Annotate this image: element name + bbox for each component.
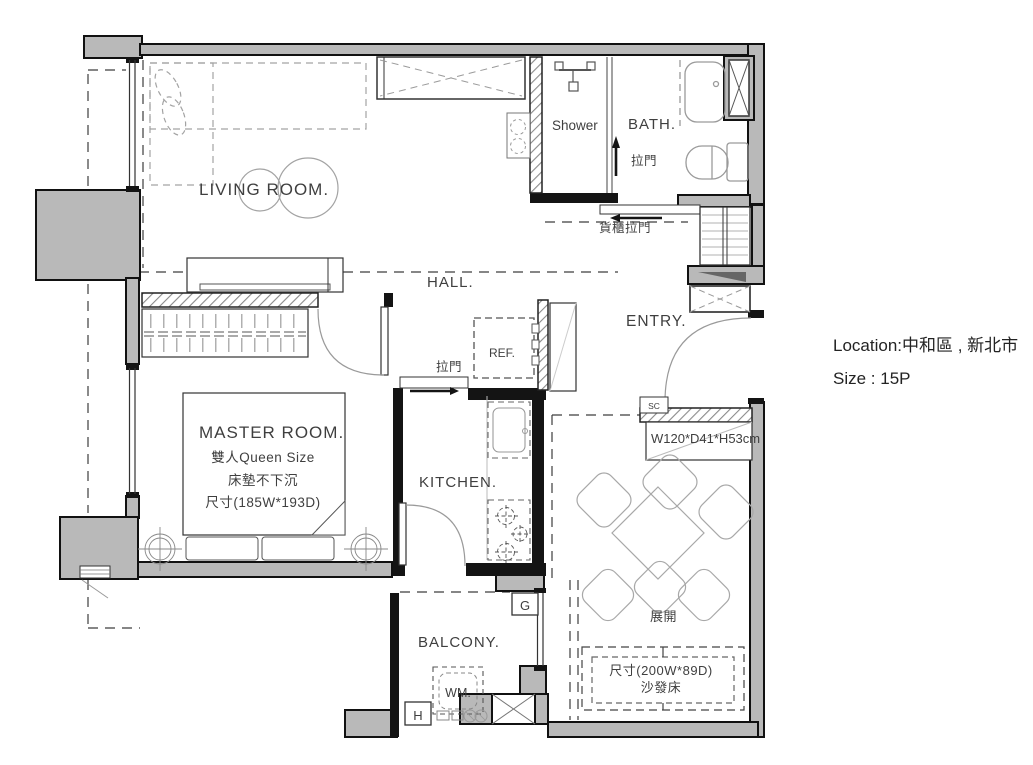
balcony-label: BALCONY.: [418, 634, 500, 651]
toilet-bowl: [686, 146, 728, 179]
master-room-label: MASTER ROOM.: [199, 423, 344, 442]
kitchen-sliding-door: [400, 377, 468, 388]
sofa-bed-label: 沙發床: [641, 680, 682, 695]
shower-label: Shower: [552, 118, 598, 133]
entry-cabinets: [690, 207, 750, 312]
pipe-shaft: [729, 60, 749, 116]
tv-console: [187, 258, 343, 292]
pantry-cabinet: [550, 303, 576, 391]
master-note-3: 尺寸(185W*193D): [205, 495, 320, 510]
hall-label: HALL.: [427, 274, 474, 291]
wardrobe: [142, 309, 308, 357]
storage-sliding-door: [600, 205, 700, 214]
sofa-unfold-label: 展開: [650, 609, 677, 624]
bath-sliding-door-arrowhead: [612, 136, 620, 148]
kitchen-sliding-door-label: 拉門: [436, 359, 462, 374]
cushion: [695, 481, 757, 543]
balcony-door-arc: [406, 505, 465, 566]
living-room-label: LIVING ROOM.: [199, 180, 329, 199]
cushion: [578, 565, 637, 624]
info-block: Location:中和區 , 新北市 Size : 15P: [833, 329, 1018, 395]
cushion: [674, 565, 733, 624]
fridge-label: REF.: [489, 346, 515, 360]
washing-machine-label: WM.: [445, 686, 471, 700]
floor-plan-canvas: LIVING ROOM. Shower BATH. 拉門 貨櫃拉門 HALL. …: [0, 0, 1033, 765]
bath-sliding-door-label: 拉門: [631, 153, 657, 168]
zone-dashed-lines: [88, 60, 688, 720]
marker-g-label: G: [520, 598, 530, 613]
marker-h-label: H: [413, 708, 422, 723]
shoe-cabinet-tag-label: SC: [648, 401, 660, 411]
hall-storage-cabinet: [377, 57, 525, 99]
cushion: [630, 557, 689, 616]
location-label: Location:中和區 , 新北市: [833, 329, 1018, 362]
toilet-tank: [727, 143, 748, 181]
water-heater: [507, 113, 530, 158]
master-door-leaf: [381, 307, 388, 375]
master-note-1: 雙人Queen Size: [211, 450, 315, 465]
bath-label: BATH.: [628, 116, 676, 133]
shoe-cabinet-dim-label: W120*D41*H53cm: [651, 431, 760, 446]
sofa-dim-label: 尺寸(200W*89D): [609, 663, 713, 678]
size-label: Size : 15P: [833, 362, 1018, 395]
master-door-arc: [318, 309, 384, 375]
entry-label: ENTRY.: [626, 313, 687, 330]
master-note-2: 床墊不下沉: [228, 473, 298, 488]
bathtub: [685, 62, 725, 122]
pillow: [186, 537, 258, 560]
storage-sliding-door-label: 貨櫃拉門: [599, 220, 651, 235]
entry-door-arc: [665, 318, 751, 402]
left-vent-window: [80, 566, 110, 598]
cushion: [573, 469, 635, 531]
kitchen-label: KITCHEN.: [419, 474, 497, 491]
pillow: [262, 537, 334, 560]
kitchen-stove: [488, 500, 530, 560]
balcony-door-leaf: [399, 503, 406, 565]
